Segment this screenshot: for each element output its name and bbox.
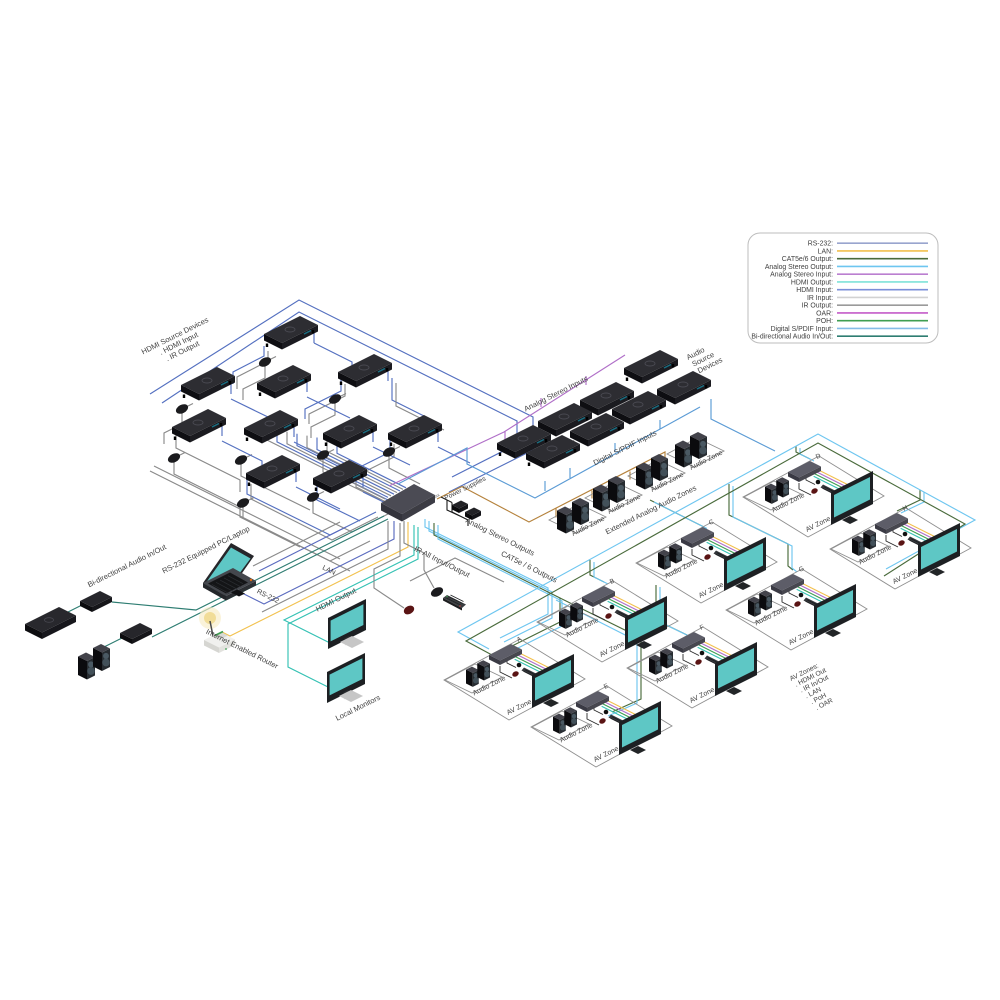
svg-text:Analog Stereo Input:: Analog Stereo Input: (770, 272, 833, 279)
svg-text:C: C (708, 518, 716, 526)
svg-text:Analog Stereo Output:: Analog Stereo Output: (765, 264, 833, 271)
svg-text:Bi-directional Audio In/Out: Bi-directional Audio In/Out (86, 542, 168, 589)
svg-text:IR Output:: IR Output: (802, 303, 833, 310)
svg-text:E: E (603, 682, 611, 690)
svg-text:HDMI Output:: HDMI Output: (791, 279, 833, 286)
svg-text:IR Input:: IR Input: (807, 295, 833, 302)
svg-text:LAN:: LAN: (818, 248, 833, 255)
svg-text:Bi-directional Audio In/Out:: Bi-directional Audio In/Out: (751, 334, 833, 341)
svg-text:A: A (516, 635, 524, 643)
svg-text:POH:: POH: (816, 318, 833, 325)
svg-text:Digital S/PDIF Input:: Digital S/PDIF Input: (771, 326, 834, 333)
svg-text:CAT5e/6 Output:: CAT5e/6 Output: (782, 256, 833, 263)
svg-text:G: G (798, 565, 806, 574)
svg-text:D: D (815, 452, 823, 460)
svg-text:HDMI Input:: HDMI Input: (796, 287, 833, 294)
svg-text:Power Supplies: Power Supplies (444, 475, 488, 502)
svg-text:OAR:: OAR: (816, 310, 833, 317)
svg-text:RS-232:: RS-232: (808, 241, 833, 248)
